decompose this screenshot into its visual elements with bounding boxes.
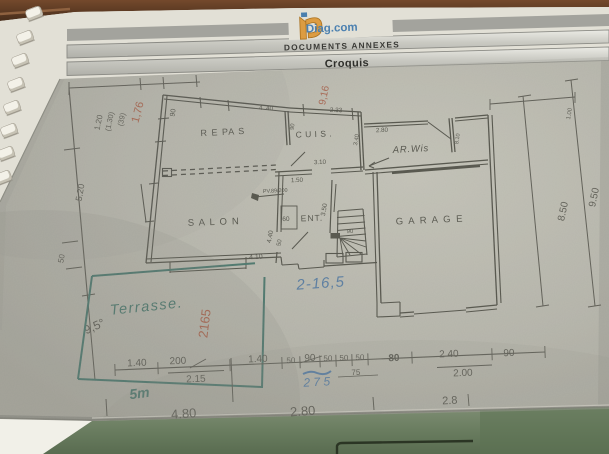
svg-text:Diag.com: Diag.com: [306, 22, 358, 36]
